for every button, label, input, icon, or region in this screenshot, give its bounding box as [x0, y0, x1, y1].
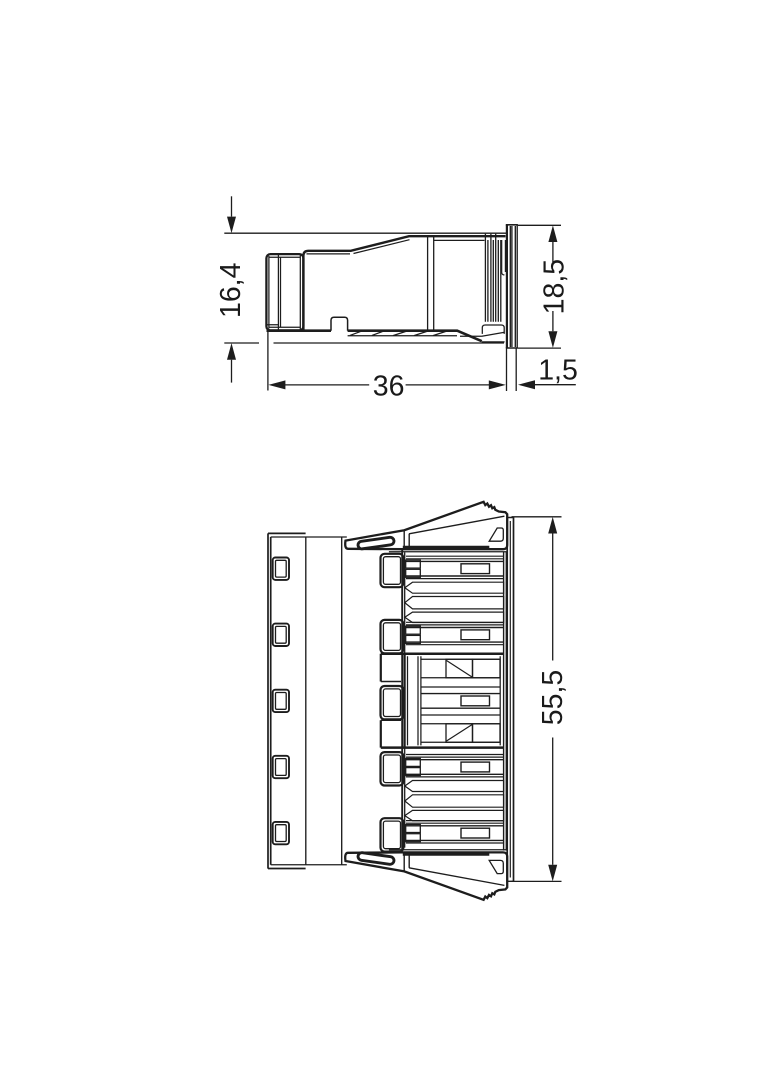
- svg-text:16,4: 16,4: [215, 262, 247, 318]
- svg-text:18,5: 18,5: [538, 259, 570, 314]
- svg-text:1,5: 1,5: [538, 354, 578, 386]
- svg-text:36: 36: [373, 370, 405, 402]
- svg-text:55,5: 55,5: [537, 670, 569, 725]
